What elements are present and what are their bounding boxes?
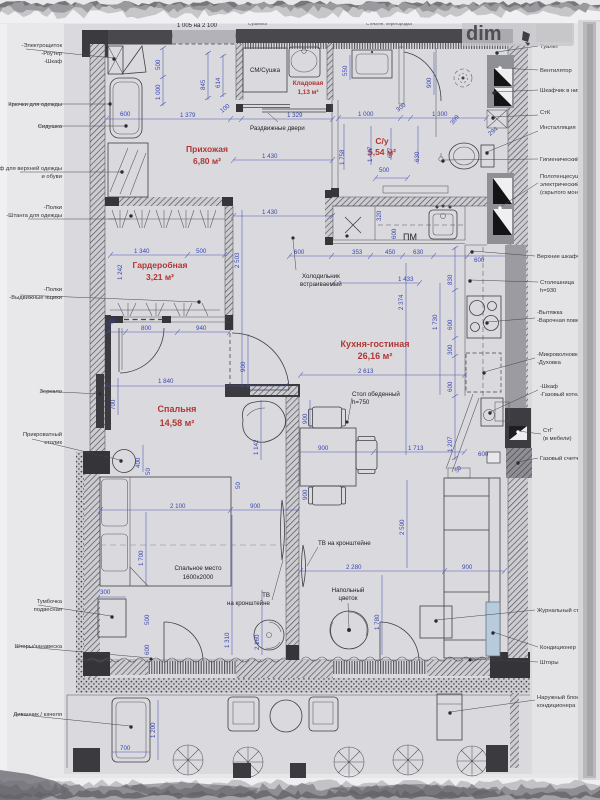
svg-text:1 200: 1 200 (150, 722, 157, 738)
svg-text:-Газовый котел: -Газовый котел (540, 391, 581, 398)
svg-text:550: 550 (342, 65, 349, 76)
svg-text:1 730: 1 730 (432, 314, 439, 330)
svg-text:614: 614 (215, 77, 222, 88)
svg-text:Холодильник: Холодильник (302, 273, 340, 280)
svg-text:14,58 м²: 14,58 м² (160, 418, 195, 428)
svg-text:1,13 м²: 1,13 м² (297, 89, 318, 96)
svg-text:Гигиенический: Гигиенический (540, 156, 579, 163)
svg-text:Диванчик / качеля: Диванчик / качеля (13, 712, 62, 718)
svg-text:Журнальный ст.: Журнальный ст. (537, 607, 580, 614)
svg-text:Прикроватный: Прикроватный (23, 431, 62, 438)
svg-text:С/у: С/у (375, 136, 389, 146)
svg-text:Кладовая: Кладовая (293, 80, 324, 87)
svg-text:2 100: 2 100 (170, 503, 186, 510)
svg-text:Столешница: Столешница (540, 280, 575, 286)
svg-text:1 005 на 2 100: 1 005 на 2 100 (177, 23, 218, 29)
svg-text:900: 900 (240, 361, 247, 372)
svg-text:1 379: 1 379 (180, 112, 196, 119)
svg-text:2 500: 2 500 (399, 519, 406, 535)
svg-text:1 000: 1 000 (155, 84, 162, 100)
svg-text:1 430: 1 430 (262, 153, 278, 160)
svg-text:СтГ: СтГ (543, 428, 554, 434)
svg-text:1 329: 1 329 (287, 112, 303, 119)
svg-text:ТВ: ТВ (262, 592, 270, 599)
svg-text:50: 50 (235, 482, 242, 489)
svg-text:Шкаф для верхней одежды: Шкаф для верхней одежды (0, 165, 62, 172)
svg-text:Гардеробная: Гардеробная (133, 260, 188, 270)
svg-text:-Полки: -Полки (44, 205, 62, 211)
svg-text:Прихожая: Прихожая (186, 144, 228, 154)
svg-text:-Микроволновка: -Микроволновка (537, 352, 582, 358)
svg-text:600: 600 (447, 381, 454, 392)
svg-text:500: 500 (155, 59, 162, 70)
svg-text:1600x2000: 1600x2000 (183, 574, 214, 581)
svg-text:1 758: 1 758 (339, 149, 346, 165)
svg-text:цветок: цветок (339, 595, 358, 602)
svg-text:900: 900 (462, 564, 473, 571)
svg-text:630: 630 (413, 249, 424, 256)
svg-text:600: 600 (391, 228, 398, 239)
svg-text:900: 900 (302, 489, 309, 500)
svg-text:Вентилятор: Вентилятор (540, 68, 572, 74)
svg-text:320: 320 (376, 210, 383, 221)
svg-text:600: 600 (294, 249, 305, 256)
svg-text:Инсталляция: Инсталляция (540, 125, 576, 131)
svg-text:ТВ на кронштейне: ТВ на кронштейне (318, 540, 371, 547)
svg-text:Напольный: Напольный (332, 587, 365, 594)
svg-text:630: 630 (414, 151, 421, 162)
svg-text:Спальное место: Спальное место (174, 565, 222, 572)
svg-text:-Выдвижные ящики: -Выдвижные ящики (9, 295, 62, 301)
svg-text:800: 800 (141, 325, 152, 332)
svg-text:СМ/Сушка: СМ/Сушка (250, 67, 281, 74)
svg-text:700: 700 (110, 399, 117, 410)
svg-text:-Шкаф: -Шкаф (44, 59, 62, 65)
svg-text:600: 600 (474, 257, 485, 264)
svg-text:СтК: СтК (540, 110, 551, 116)
svg-text:Сидушка: Сидушка (38, 124, 63, 130)
svg-text:2 613: 2 613 (358, 368, 374, 375)
svg-text:1 700: 1 700 (138, 550, 145, 566)
svg-text:Шторы/занавеска: Шторы/занавеска (15, 644, 63, 650)
svg-text:5,54 м²: 5,54 м² (368, 147, 396, 157)
svg-text:353: 353 (352, 249, 363, 256)
svg-text:Газовый счетчик: Газовый счетчик (540, 455, 585, 462)
svg-text:электрический: электрический (540, 181, 579, 188)
svg-text:dim: dim (466, 23, 502, 45)
svg-text:1 000: 1 000 (358, 111, 374, 118)
svg-text:700: 700 (120, 745, 131, 752)
svg-text:50: 50 (145, 468, 152, 475)
svg-text:450: 450 (385, 249, 396, 256)
svg-text:1 300: 1 300 (432, 111, 448, 118)
svg-text:Шторы: Шторы (540, 660, 559, 666)
svg-text:Наружный блок: Наружный блок (537, 694, 579, 701)
svg-text:встраиваемый: встраиваемый (300, 281, 342, 288)
svg-text:500: 500 (144, 614, 151, 625)
svg-text:-Духовка: -Духовка (537, 360, 562, 366)
svg-text:500: 500 (196, 248, 207, 255)
svg-text:1 142: 1 142 (253, 439, 260, 455)
svg-text:Спальня: Спальня (158, 404, 197, 414)
svg-text:2 503: 2 503 (234, 252, 241, 268)
svg-text:Кондиционер: Кондиционер (540, 645, 576, 651)
svg-text:900: 900 (250, 503, 261, 510)
svg-text:1 840: 1 840 (158, 378, 174, 385)
svg-text:-Электрощиток: -Электрощиток (21, 43, 62, 49)
svg-text:600: 600 (478, 451, 489, 458)
svg-text:26,16 м²: 26,16 м² (358, 351, 393, 361)
svg-text:Крючки для одежды: Крючки для одежды (8, 102, 62, 108)
svg-text:кондиционера: кондиционера (537, 703, 576, 709)
svg-text:300: 300 (100, 589, 111, 596)
svg-text:900: 900 (426, 77, 433, 88)
svg-text:и обуви: и обуви (42, 174, 62, 180)
svg-text:300: 300 (447, 344, 454, 355)
svg-text:6,80 м²: 6,80 м² (193, 156, 221, 166)
svg-text:845: 845 (200, 79, 207, 90)
svg-text:1 310: 1 310 (224, 632, 231, 648)
svg-text:1 207: 1 207 (447, 436, 454, 452)
svg-text:600: 600 (447, 319, 454, 330)
svg-text:-Шкаф: -Шкаф (540, 384, 558, 390)
svg-text:600: 600 (120, 111, 131, 118)
svg-text:1 430: 1 430 (262, 209, 278, 216)
svg-text:h=930: h=930 (540, 288, 556, 294)
svg-text:830: 830 (447, 274, 454, 285)
svg-text:1 242: 1 242 (117, 264, 124, 280)
svg-text:-Вытяжка: -Вытяжка (537, 310, 563, 316)
svg-text:1 340: 1 340 (134, 248, 150, 255)
svg-text:Стол обеденный: Стол обеденный (352, 391, 400, 398)
svg-text:1 780: 1 780 (374, 614, 381, 630)
svg-text:-Штанга для одежды: -Штанга для одежды (6, 213, 62, 219)
svg-text:столик: столик (44, 440, 62, 446)
svg-text:2 374: 2 374 (398, 294, 405, 310)
svg-text:2 280: 2 280 (346, 564, 362, 571)
svg-text:1 713: 1 713 (408, 445, 424, 452)
svg-text:900: 900 (318, 445, 329, 452)
svg-text:600: 600 (144, 644, 151, 655)
svg-text:Кухня-гостиная: Кухня-гостиная (341, 339, 410, 349)
svg-text:ПМ: ПМ (403, 232, 417, 242)
svg-text:500: 500 (379, 167, 390, 174)
svg-text:Раздвижные двери: Раздвижные двери (250, 125, 305, 132)
svg-text:1 433: 1 433 (398, 276, 414, 283)
svg-text:900: 900 (302, 413, 309, 424)
svg-text:940: 940 (196, 325, 207, 332)
svg-text:на кронштейне: на кронштейне (227, 600, 271, 607)
svg-text:3,21 м²: 3,21 м² (146, 272, 174, 282)
svg-text:Тумбочка: Тумбочка (37, 599, 63, 605)
svg-text:2 160: 2 160 (254, 634, 261, 650)
svg-text:400: 400 (135, 457, 142, 468)
svg-text:-Полки: -Полки (44, 287, 62, 293)
svg-text:(в мебели): (в мебели) (543, 436, 572, 442)
svg-text:h=750: h=750 (352, 399, 370, 406)
